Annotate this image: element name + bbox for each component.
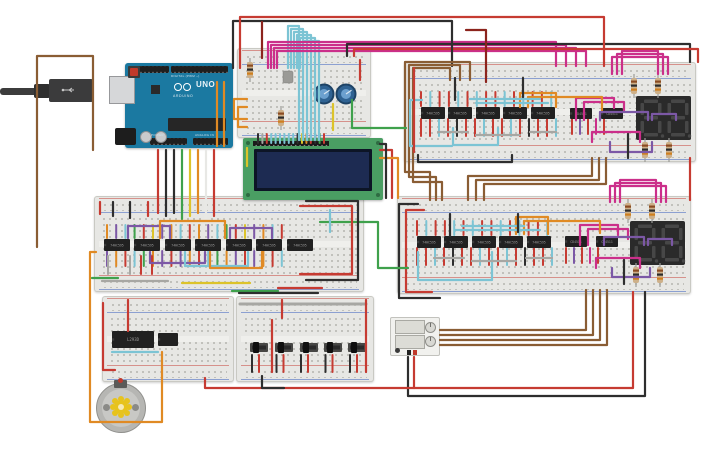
power-rail[interactable] xyxy=(411,147,689,158)
usb-interface-chip xyxy=(151,85,160,94)
arduino-uno-board[interactable]: UNO ARDUINO DIGITAL (PWM ~) POWER ANALOG… xyxy=(125,63,233,148)
arduino-model-label: UNO xyxy=(196,80,215,89)
power-jack xyxy=(115,128,136,145)
terminal-field[interactable] xyxy=(402,214,686,276)
psu-current-display xyxy=(395,335,425,349)
analog-header-pins[interactable] xyxy=(193,138,228,145)
psu-voltage-knob[interactable] xyxy=(425,322,436,333)
circuit-canvas: UNO ARDUINO DIGITAL (PWM ~) POWER ANALOG… xyxy=(0,0,725,453)
lcd-bezel xyxy=(254,149,372,191)
usb-cable-connector[interactable] xyxy=(49,79,93,102)
psu-positive-terminal[interactable] xyxy=(413,350,417,355)
mounting-hole xyxy=(376,193,380,197)
power-rail[interactable] xyxy=(101,277,357,288)
mounting-hole xyxy=(376,141,380,145)
digital-pins-label: DIGITAL (PWM ~) xyxy=(171,74,200,78)
breadboard-center[interactable] xyxy=(94,196,364,292)
usb-cable-cord[interactable] xyxy=(0,88,38,95)
digital-header-pins[interactable] xyxy=(171,66,228,73)
terminal-field[interactable] xyxy=(241,314,369,364)
power-rail[interactable] xyxy=(404,200,684,211)
power-rail[interactable] xyxy=(243,300,367,311)
usb-cable-plug[interactable] xyxy=(34,84,50,98)
lcd-pin-header[interactable] xyxy=(253,141,329,146)
usb-port xyxy=(109,76,135,104)
psu-power-button[interactable] xyxy=(395,348,400,353)
power-pins-label: POWER xyxy=(151,133,164,137)
terminal-field[interactable] xyxy=(107,314,229,364)
usb-trident-icon xyxy=(61,86,77,94)
motor-screw xyxy=(132,404,139,411)
breadboard-bottom-left[interactable] xyxy=(102,296,234,382)
terminal-field[interactable] xyxy=(99,214,359,274)
power-rail[interactable] xyxy=(404,279,684,290)
psu-voltage-display xyxy=(395,320,425,334)
dc-motor[interactable] xyxy=(96,383,146,433)
arduino-brand-label: ARDUINO xyxy=(173,94,193,98)
breadboard-top-right[interactable] xyxy=(404,62,696,162)
lcd-16x2-display[interactable] xyxy=(243,138,383,200)
terminal-field[interactable] xyxy=(409,80,691,144)
mounting-hole xyxy=(246,141,250,145)
atmega-chip xyxy=(168,118,226,131)
psu-negative-terminal[interactable] xyxy=(407,350,411,355)
power-rail[interactable] xyxy=(109,367,227,378)
power-rail[interactable] xyxy=(243,367,367,378)
terminal-field[interactable] xyxy=(242,66,366,120)
power-rail[interactable] xyxy=(411,66,689,77)
motor-shaft-gear xyxy=(114,400,128,414)
power-rail[interactable] xyxy=(244,52,364,63)
power-rail[interactable] xyxy=(101,200,357,211)
mounting-hole xyxy=(246,193,250,197)
lcd-screen xyxy=(257,152,369,188)
breadboard-small-top[interactable] xyxy=(237,48,371,138)
power-rail[interactable] xyxy=(244,123,364,134)
breadboard-bottom-mid[interactable] xyxy=(236,296,374,382)
motor-terminal[interactable] xyxy=(114,380,127,388)
breadboard-mid-right[interactable] xyxy=(397,196,691,294)
psu-current-knob[interactable] xyxy=(425,336,436,347)
power-supply[interactable] xyxy=(390,317,440,356)
reset-button[interactable] xyxy=(128,66,140,78)
power-rail[interactable] xyxy=(109,300,227,311)
arduino-infinity-logo xyxy=(174,83,191,91)
motor-screw xyxy=(103,404,110,411)
analog-pins-label: ANALOG IN xyxy=(195,133,214,137)
